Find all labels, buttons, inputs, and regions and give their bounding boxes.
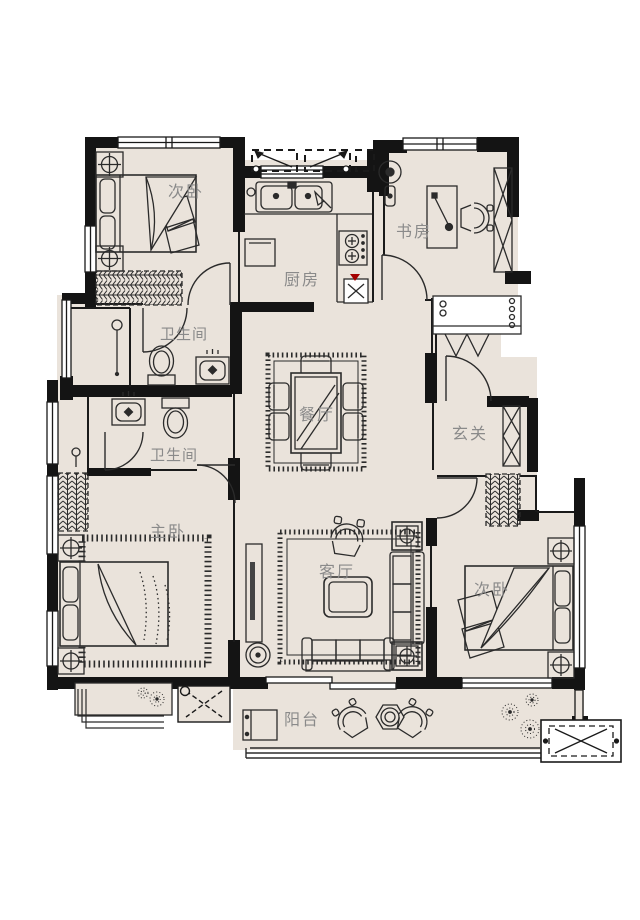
- window-corridor-left: [62, 300, 71, 378]
- label-dining: 餐厅: [299, 406, 335, 424]
- label-study: 书房: [396, 223, 432, 241]
- window-bedroom2-right: [574, 526, 585, 668]
- window-master-left-2: [47, 476, 58, 554]
- side-table-icon: [392, 642, 422, 670]
- label-foyer: 玄关: [452, 425, 488, 443]
- label-bathroom-upper: 卫生间: [160, 326, 208, 343]
- window-bedroom2-bottom: [462, 678, 552, 688]
- label-balcony: 阳台: [284, 711, 320, 729]
- ac-outdoor-unit-left: [178, 686, 230, 722]
- wardrobe-icon: [486, 474, 520, 526]
- floor-plan: 次卧 卫生间 卫生间: [0, 0, 640, 920]
- label-kitchen: 厨房: [284, 271, 320, 289]
- label-master-bedroom: 主卧: [150, 523, 186, 541]
- wardrobe-icon: [96, 271, 182, 305]
- label-bedroom-top-left: 次卧: [168, 183, 204, 201]
- label-bathroom-lower: 卫生间: [150, 447, 198, 464]
- plant-pot-icon: [246, 643, 270, 667]
- window-bedroom1-top: [118, 137, 220, 148]
- washing-machine-icon: [243, 710, 277, 740]
- side-table-icon: [392, 522, 422, 550]
- floor-plan-page: 次卧 卫生间 卫生间: [0, 0, 640, 920]
- floor-drain-icon: [344, 274, 368, 303]
- label-bedroom-bottom-right: 次卧: [474, 581, 510, 599]
- label-living-room: 客厅: [319, 563, 355, 581]
- window-study: [403, 138, 477, 150]
- window-master-left-3: [47, 611, 58, 666]
- bay-window-left: [75, 683, 172, 728]
- floor-study: [379, 140, 518, 302]
- wardrobe-icon: [58, 473, 88, 531]
- window-bedroom1-left: [85, 226, 96, 272]
- window-master-left-1: [47, 402, 58, 464]
- double-bed-icon: [60, 562, 170, 646]
- ac-outdoor-unit-right: [541, 720, 621, 762]
